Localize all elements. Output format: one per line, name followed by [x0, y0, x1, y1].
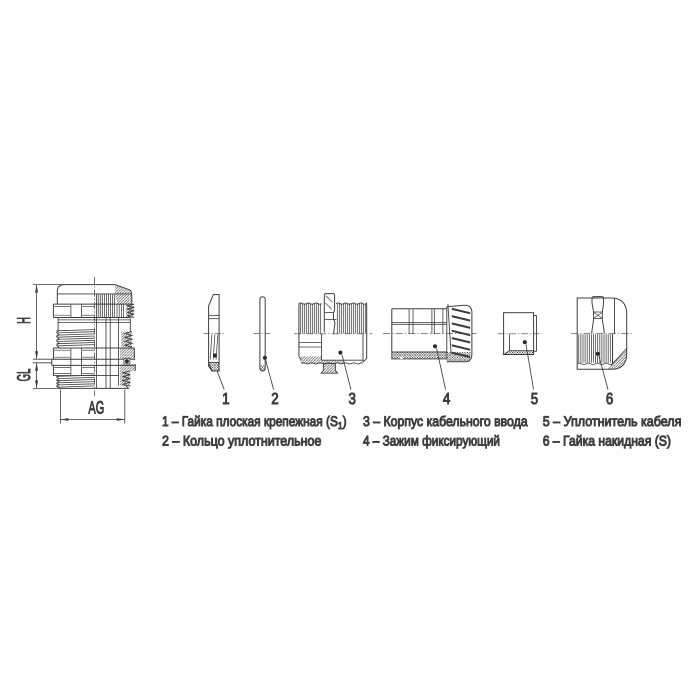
svg-text:6 – Гайка накидная (S): 6 – Гайка накидная (S)	[543, 432, 671, 448]
svg-text:6: 6	[606, 391, 613, 408]
svg-text:H: H	[13, 317, 34, 324]
svg-text:4: 4	[443, 391, 450, 408]
svg-text:3 – Корпус кабельного ввода: 3 – Корпус кабельного ввода	[363, 413, 528, 429]
svg-text:4 – Зажим фиксирующий: 4 – Зажим фиксирующий	[363, 432, 500, 448]
svg-text:1: 1	[222, 391, 229, 408]
svg-text:AG: AG	[88, 398, 104, 418]
svg-text:5: 5	[531, 391, 538, 408]
svg-text:3: 3	[349, 391, 356, 408]
svg-text:1 – Гайка плоская крепежная (S: 1 – Гайка плоская крепежная (S1)	[162, 413, 347, 432]
svg-text:5 – Уплотнитель кабеля: 5 – Уплотнитель кабеля	[543, 413, 682, 429]
svg-text:2: 2	[271, 391, 278, 408]
svg-text:2 – Кольцо уплотнительное: 2 – Кольцо уплотнительное	[162, 432, 322, 448]
svg-text:GL: GL	[13, 369, 34, 382]
